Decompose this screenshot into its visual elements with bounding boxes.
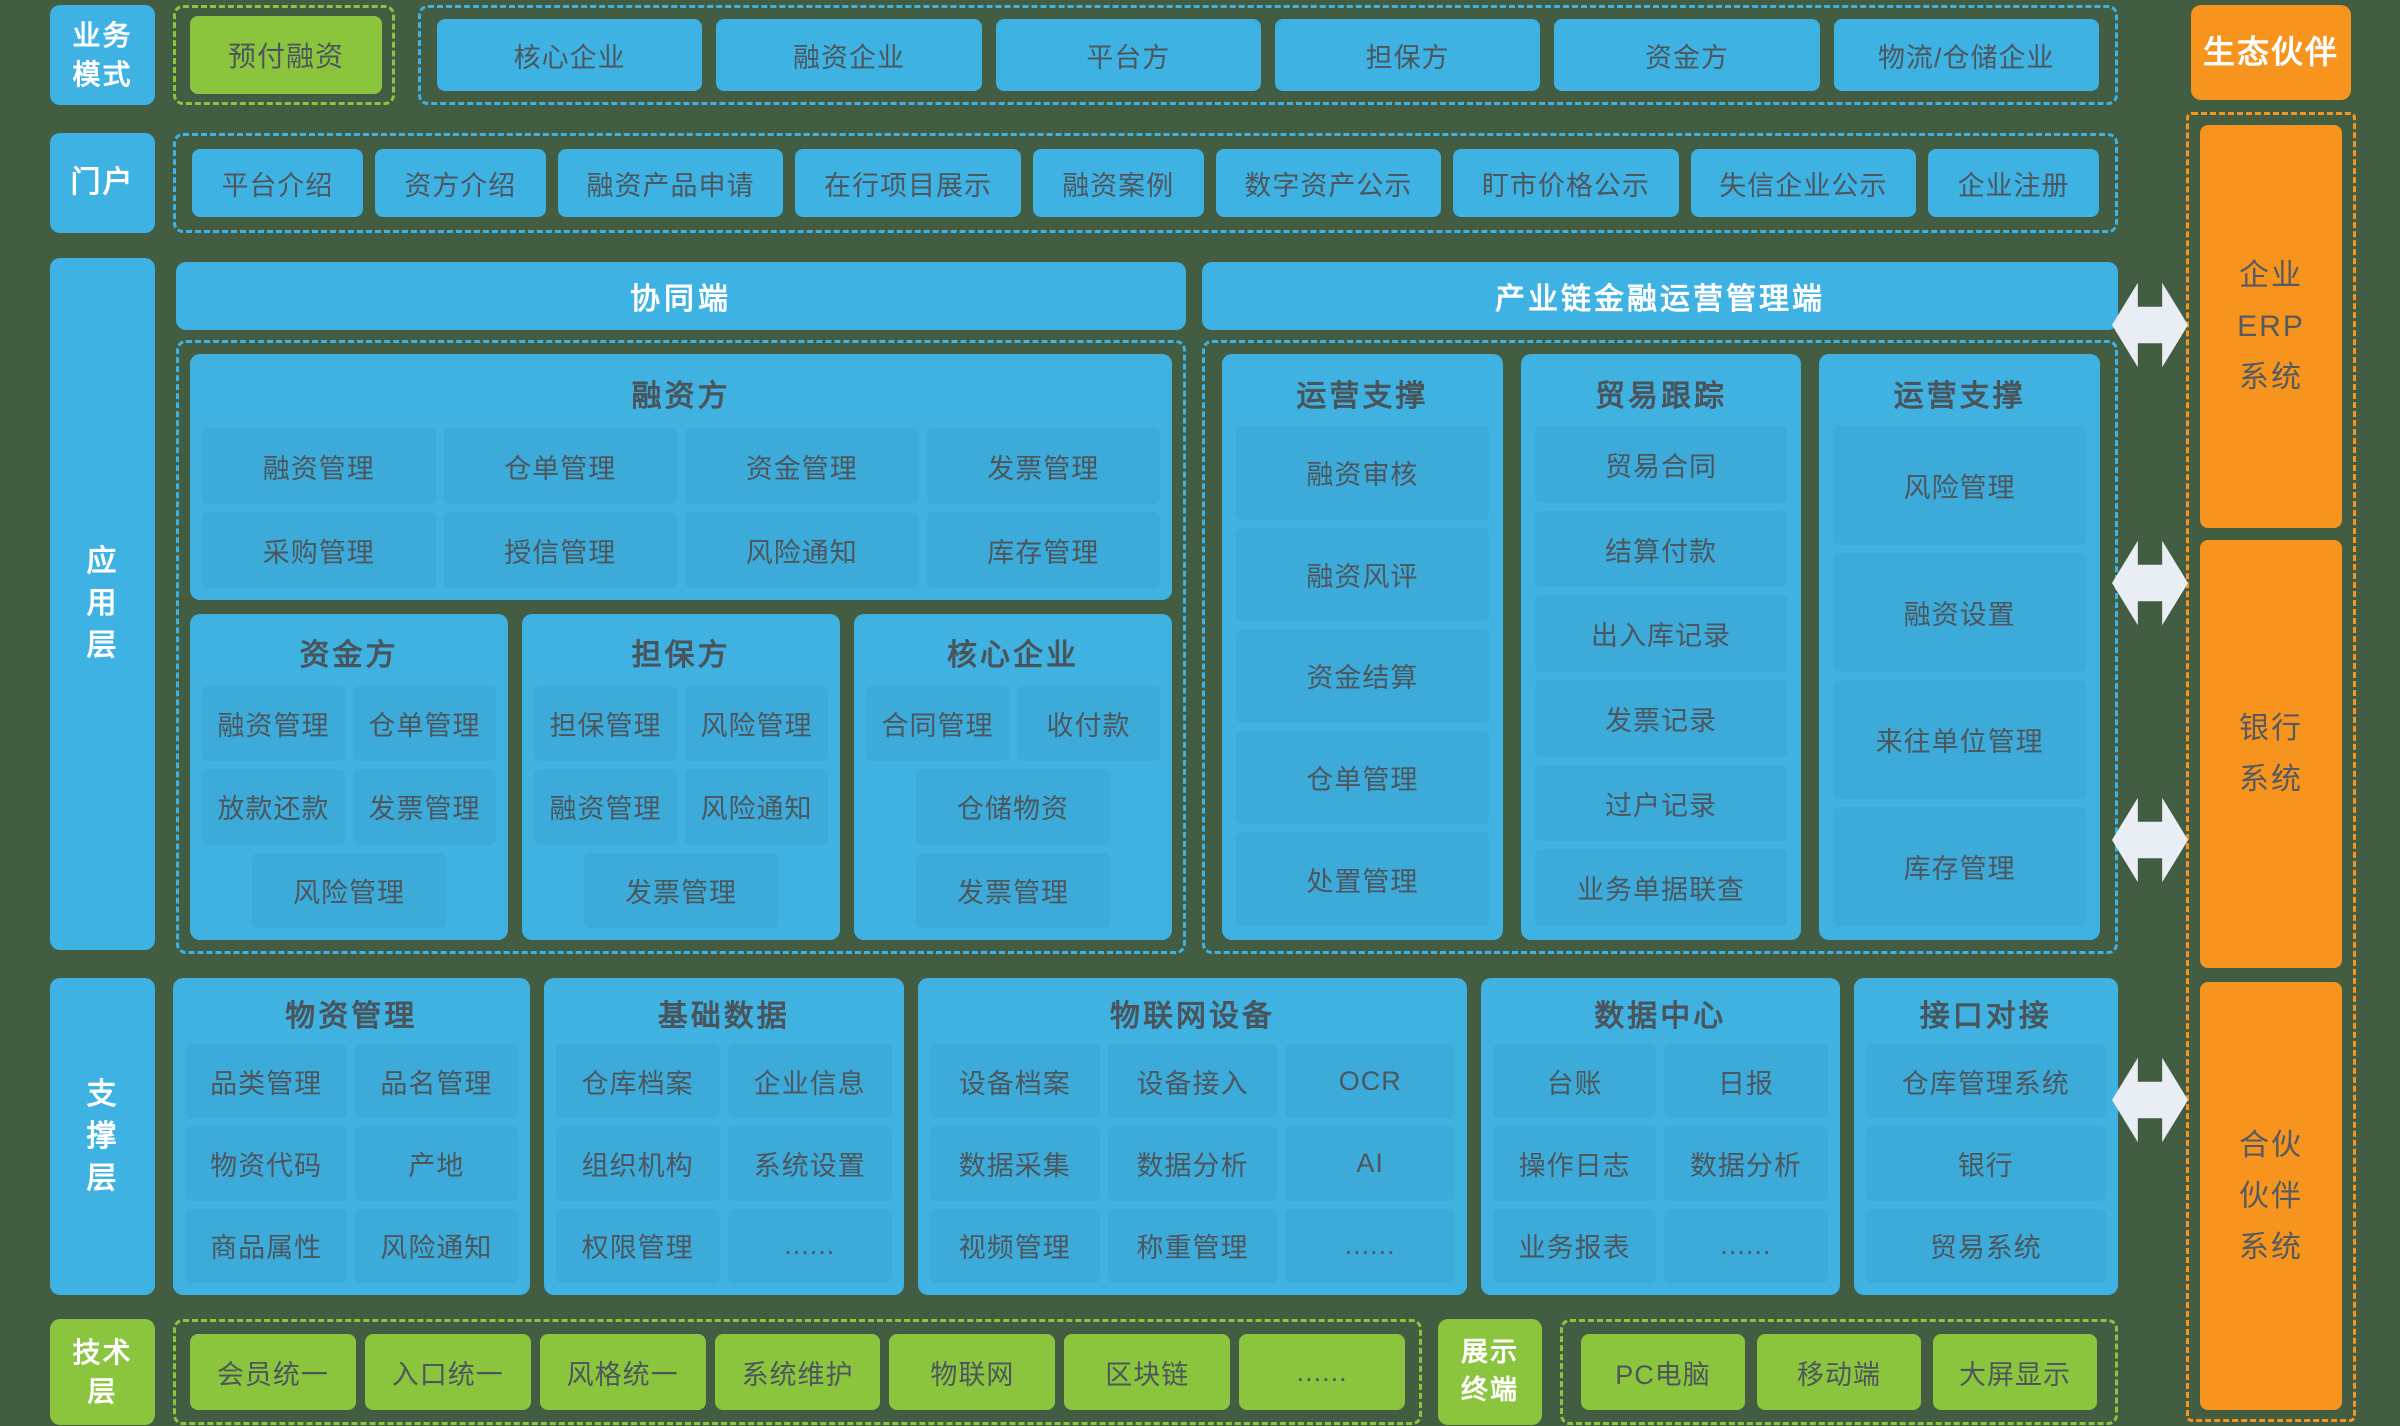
support-group-title: 物联网设备	[930, 990, 1455, 1036]
funder-title: 资金方	[202, 626, 496, 678]
tech-item: 区块链	[1064, 1334, 1230, 1410]
display-terminal-group: PC电脑 移动端 大屏显示	[1560, 1319, 2118, 1425]
module-cell: 数据分析	[1664, 1126, 1827, 1200]
double-arrow-icon	[2112, 535, 2188, 631]
module-cell: 资金管理	[685, 428, 919, 504]
module-cell: 收付款	[1017, 686, 1160, 761]
party-box: 担保方	[1275, 19, 1540, 91]
module-cell: 发票管理	[916, 853, 1110, 928]
tech-item: 风格统一	[540, 1334, 706, 1410]
display-item: 移动端	[1757, 1334, 1921, 1410]
core-enterprise-panel: 核心企业 合同管理 收付款 仓储物资 发票管理	[854, 614, 1172, 940]
business-mode-highlight: 预付融资	[190, 16, 382, 94]
ops-columns: 运营支撑 融资审核 融资风评 资金结算 仓单管理 处置管理 贸易跟踪 贸易合同 …	[1222, 354, 2100, 940]
portal-item: 资方介绍	[375, 149, 546, 217]
party-box: 资金方	[1554, 19, 1819, 91]
portal-item: 企业注册	[1928, 149, 2099, 217]
display-item: PC电脑	[1581, 1334, 1745, 1410]
display-item: 大屏显示	[1933, 1334, 2097, 1410]
support-group-materials: 物资管理 品类管理 品名管理 物资代码 产地 商品属性 风险通知	[173, 978, 530, 1295]
portal-item: 平台介绍	[192, 149, 363, 217]
module-cell: 日报	[1664, 1044, 1827, 1118]
module-cell: 银行	[1866, 1126, 2107, 1200]
module-cell: 仓单管理	[1236, 731, 1489, 825]
module-cell: 设备档案	[930, 1044, 1100, 1118]
technology-group: 会员统一 入口统一 风格统一 系统维护 物联网 区块链 ......	[173, 1319, 1422, 1425]
module-cell: ......	[1285, 1209, 1455, 1283]
module-cell: 企业信息	[728, 1044, 892, 1118]
module-cell: 结算付款	[1535, 511, 1788, 588]
module-cell: 发票管理	[927, 428, 1161, 504]
portal-item: 数字资产公示	[1216, 149, 1442, 217]
double-arrow-icon	[2112, 277, 2188, 373]
module-cell: 操作日志	[1493, 1126, 1656, 1200]
collab-header: 协同端	[176, 262, 1186, 330]
double-arrow-icon	[2112, 1052, 2188, 1148]
module-cell: 业务报表	[1493, 1209, 1656, 1283]
eco-system-bank: 银行 系统	[2200, 540, 2342, 968]
module-cell: 融资审核	[1236, 426, 1489, 520]
module-cell: 担保管理	[534, 686, 677, 761]
module-cell: 风险通知	[685, 512, 919, 588]
module-cell: 发票记录	[1535, 680, 1788, 757]
module-cell: 贸易合同	[1535, 426, 1788, 503]
portal-item: 盯市价格公示	[1453, 149, 1679, 217]
support-group-title: 基础数据	[556, 990, 892, 1036]
module-cell: 风险通知	[685, 769, 828, 844]
module-cell: 融资设置	[1833, 553, 2086, 672]
ops-col-trade-tracking: 贸易跟踪 贸易合同 结算付款 出入库记录 发票记录 过户记录 业务单据联查	[1521, 354, 1802, 940]
tech-item: ......	[1239, 1334, 1405, 1410]
module-cell: 仓单管理	[353, 686, 496, 761]
module-cell: 合同管理	[866, 686, 1009, 761]
module-cell: 品类管理	[185, 1044, 347, 1118]
party-box: 平台方	[996, 19, 1261, 91]
module-cell: 物资代码	[185, 1126, 347, 1200]
eco-partner-header: 生态伙伴	[2191, 5, 2351, 100]
module-cell: 处置管理	[1236, 832, 1489, 926]
module-cell: 数据采集	[930, 1126, 1100, 1200]
module-cell: 风险通知	[355, 1209, 517, 1283]
module-cell: 数据分析	[1108, 1126, 1278, 1200]
support-group-title: 接口对接	[1866, 990, 2107, 1036]
ops-header: 产业链金融运营管理端	[1202, 262, 2118, 330]
module-cell: 融资管理	[202, 428, 436, 504]
module-cell: AI	[1285, 1126, 1455, 1200]
module-cell: 库存管理	[1833, 807, 2086, 926]
ops-col3-title: 运营支撑	[1833, 368, 2086, 418]
module-cell: 品名管理	[355, 1044, 517, 1118]
financier-title: 融资方	[202, 366, 1160, 420]
layer-label-display-terminal: 展示 终端	[1438, 1319, 1542, 1425]
party-box: 融资企业	[716, 19, 981, 91]
support-group-title: 数据中心	[1493, 990, 1827, 1036]
module-cell: 授信管理	[444, 512, 678, 588]
module-cell: 产地	[355, 1126, 517, 1200]
module-cell: 台账	[1493, 1044, 1656, 1118]
module-cell: 仓储物资	[916, 769, 1110, 844]
module-cell: 视频管理	[930, 1209, 1100, 1283]
support-group-interface: 接口对接 仓库管理系统 银行 贸易系统	[1854, 978, 2119, 1295]
portal-item: 失信企业公示	[1691, 149, 1917, 217]
module-cell: 仓库管理系统	[1866, 1044, 2107, 1118]
module-cell: 采购管理	[202, 512, 436, 588]
module-cell: 设备接入	[1108, 1044, 1278, 1118]
module-cell: 融资管理	[534, 769, 677, 844]
collab-sub-row: 资金方 融资管理 仓单管理 放款还款 发票管理 风险管理 担保方 担保管理 风险…	[190, 614, 1172, 940]
layer-label-support: 支 撑 层	[50, 978, 155, 1295]
support-group-base-data: 基础数据 仓库档案 企业信息 组织机构 系统设置 权限管理 ......	[544, 978, 904, 1295]
module-cell: 仓库档案	[556, 1044, 720, 1118]
support-group-title: 物资管理	[185, 990, 518, 1036]
module-cell: OCR	[1285, 1044, 1455, 1118]
ops-col-operation-support-2: 运营支撑 风险管理 融资设置 来往单位管理 库存管理	[1819, 354, 2100, 940]
support-row: 物资管理 品类管理 品名管理 物资代码 产地 商品属性 风险通知 基础数据 仓库…	[173, 978, 2118, 1295]
layer-label-technology: 技术 层	[50, 1319, 155, 1425]
tech-item: 入口统一	[365, 1334, 531, 1410]
module-cell: 风险管理	[252, 853, 446, 928]
module-cell: 仓单管理	[444, 428, 678, 504]
portal-group: 平台介绍 资方介绍 融资产品申请 在行项目展示 融资案例 数字资产公示 盯市价格…	[173, 133, 2118, 233]
ops-col-operation-support: 运营支撑 融资审核 融资风评 资金结算 仓单管理 处置管理	[1222, 354, 1503, 940]
module-cell: 风险管理	[1833, 426, 2086, 545]
eco-system-partner: 合伙 伙伴 系统	[2200, 982, 2342, 1410]
module-cell: 称重管理	[1108, 1209, 1278, 1283]
double-arrow-icon	[2112, 792, 2188, 888]
layer-label-portal: 门户	[50, 133, 155, 233]
module-cell: 出入库记录	[1535, 595, 1788, 672]
business-mode-parties-group: 核心企业 融资企业 平台方 担保方 资金方 物流/仓储企业	[418, 5, 2118, 105]
tech-item: 会员统一	[190, 1334, 356, 1410]
guarantor-panel: 担保方 担保管理 风险管理 融资管理 风险通知 发票管理	[522, 614, 840, 940]
portal-item: 融资产品申请	[558, 149, 784, 217]
architecture-diagram: 业务 模式 门户 应 用 层 支 撑 层 技术 层 预付融资 核心企业 融资企业…	[0, 0, 2400, 1426]
module-cell: 融资风评	[1236, 528, 1489, 622]
module-cell: 发票管理	[584, 853, 778, 928]
layer-label-business-mode: 业务 模式	[50, 5, 155, 105]
module-cell: 库存管理	[927, 512, 1161, 588]
core-enterprise-title: 核心企业	[866, 626, 1160, 678]
module-cell: 贸易系统	[1866, 1209, 2107, 1283]
ops-col2-title: 贸易跟踪	[1535, 368, 1788, 418]
module-cell: 商品属性	[185, 1209, 347, 1283]
module-cell: 过户记录	[1535, 765, 1788, 842]
layer-label-application: 应 用 层	[50, 258, 155, 950]
ops-col1-title: 运营支撑	[1236, 368, 1489, 418]
module-cell: 系统设置	[728, 1126, 892, 1200]
module-cell: ......	[1664, 1209, 1827, 1283]
guarantor-title: 担保方	[534, 626, 828, 678]
portal-item: 在行项目展示	[795, 149, 1021, 217]
support-group-iot: 物联网设备 设备档案 设备接入 OCR 数据采集 数据分析 AI 视频管理 称重…	[918, 978, 1467, 1295]
module-cell: ......	[728, 1209, 892, 1283]
module-cell: 来往单位管理	[1833, 680, 2086, 799]
tech-item: 物联网	[889, 1334, 1055, 1410]
eco-system-erp: 企业 ERP 系统	[2200, 125, 2342, 528]
party-box: 物流/仓储企业	[1834, 19, 2099, 91]
module-cell: 组织机构	[556, 1126, 720, 1200]
portal-item: 融资案例	[1033, 149, 1204, 217]
module-cell: 放款还款	[202, 769, 345, 844]
funder-panel: 资金方 融资管理 仓单管理 放款还款 发票管理 风险管理	[190, 614, 508, 940]
module-cell: 权限管理	[556, 1209, 720, 1283]
tech-item: 系统维护	[715, 1334, 881, 1410]
support-group-data-center: 数据中心 台账 日报 操作日志 数据分析 业务报表 ......	[1481, 978, 1839, 1295]
module-cell: 风险管理	[685, 686, 828, 761]
financier-panel: 融资方 融资管理 仓单管理 资金管理 发票管理 采购管理 授信管理 风险通知 库…	[190, 354, 1172, 600]
module-cell: 资金结算	[1236, 629, 1489, 723]
module-cell: 发票管理	[353, 769, 496, 844]
module-cell: 业务单据联查	[1535, 849, 1788, 926]
module-cell: 融资管理	[202, 686, 345, 761]
party-box: 核心企业	[437, 19, 702, 91]
